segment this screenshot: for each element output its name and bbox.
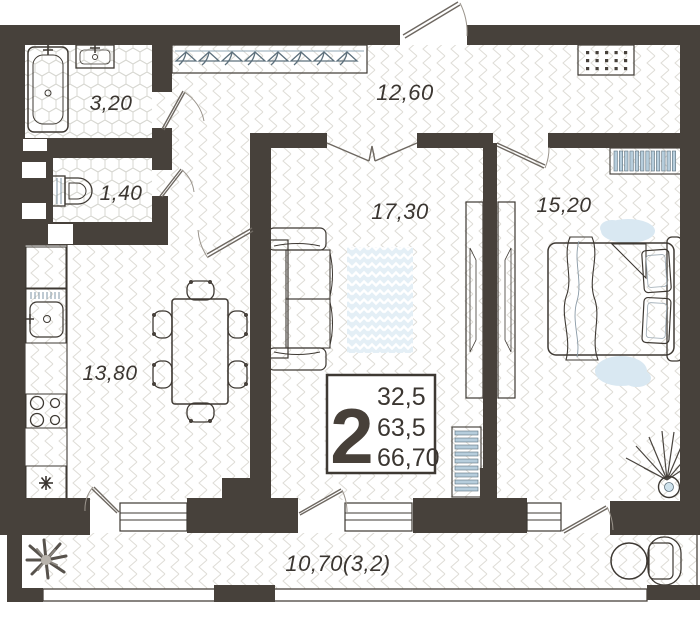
wall-right bbox=[680, 25, 700, 535]
wall-living-top-left bbox=[250, 133, 327, 148]
wall-balcony-left-foot bbox=[7, 588, 43, 602]
shaft-bathroom bbox=[23, 139, 47, 151]
wall-bedroom-top bbox=[548, 133, 683, 148]
wall-living-bedroom-base bbox=[480, 468, 497, 500]
area-value: 63,5 bbox=[377, 414, 426, 442]
wall-living-bedroom bbox=[483, 143, 497, 473]
wall-bottom-c bbox=[413, 498, 527, 533]
wall-bath-hall-upper bbox=[152, 45, 172, 92]
wall-top-left bbox=[0, 25, 400, 45]
floor-plan-canvas: 3,20 1,40 12,60 17,30 15,20 13,80 10,70(… bbox=[0, 0, 700, 635]
room-label-hallway: 12,60 bbox=[376, 80, 434, 105]
wall-bath-hall-mid bbox=[152, 128, 172, 170]
room-label-bedroom: 15,20 bbox=[536, 194, 591, 217]
wall-balcony-right bbox=[647, 585, 700, 600]
room-label-living: 17,30 bbox=[371, 199, 429, 224]
total-area-value: 66,70 bbox=[377, 444, 440, 472]
room-label-balcony: 10,70(3,2) bbox=[285, 551, 390, 576]
wall-bottom-a bbox=[0, 498, 90, 535]
radiator-bedroom bbox=[610, 148, 681, 174]
zigzag-rug bbox=[347, 247, 413, 353]
wall-bedroom-bottom bbox=[610, 501, 700, 535]
rooms-count: 2 bbox=[330, 392, 373, 480]
wall-kitchen-living bbox=[250, 133, 271, 500]
snowflake-icon bbox=[39, 476, 53, 490]
room-label-wc: 1,40 bbox=[100, 182, 143, 205]
wall-living-top-right bbox=[417, 133, 493, 148]
wall-kitchen-top bbox=[0, 222, 167, 245]
room-label-bathroom: 3,20 bbox=[90, 92, 133, 115]
shaft-wc-lower bbox=[22, 203, 46, 219]
room-label-kitchen: 13,80 bbox=[82, 362, 137, 385]
shaft-kitchen bbox=[48, 224, 73, 244]
balcony-pillar bbox=[214, 585, 275, 602]
floor-plan-svg: 3,20 1,40 12,60 17,30 15,20 13,80 10,70(… bbox=[0, 0, 700, 635]
wall-left bbox=[0, 25, 25, 535]
apartment-info-box: 2 32,5 63,5 66,70 bbox=[327, 375, 440, 480]
living-area-value: 32,5 bbox=[377, 383, 426, 411]
wall-balcony-left bbox=[7, 535, 22, 595]
wall-bottom-b bbox=[187, 498, 298, 533]
wall-top-right bbox=[467, 25, 700, 45]
wall-kitchen-living-base bbox=[222, 478, 271, 500]
shaft-wc-upper bbox=[22, 162, 46, 178]
